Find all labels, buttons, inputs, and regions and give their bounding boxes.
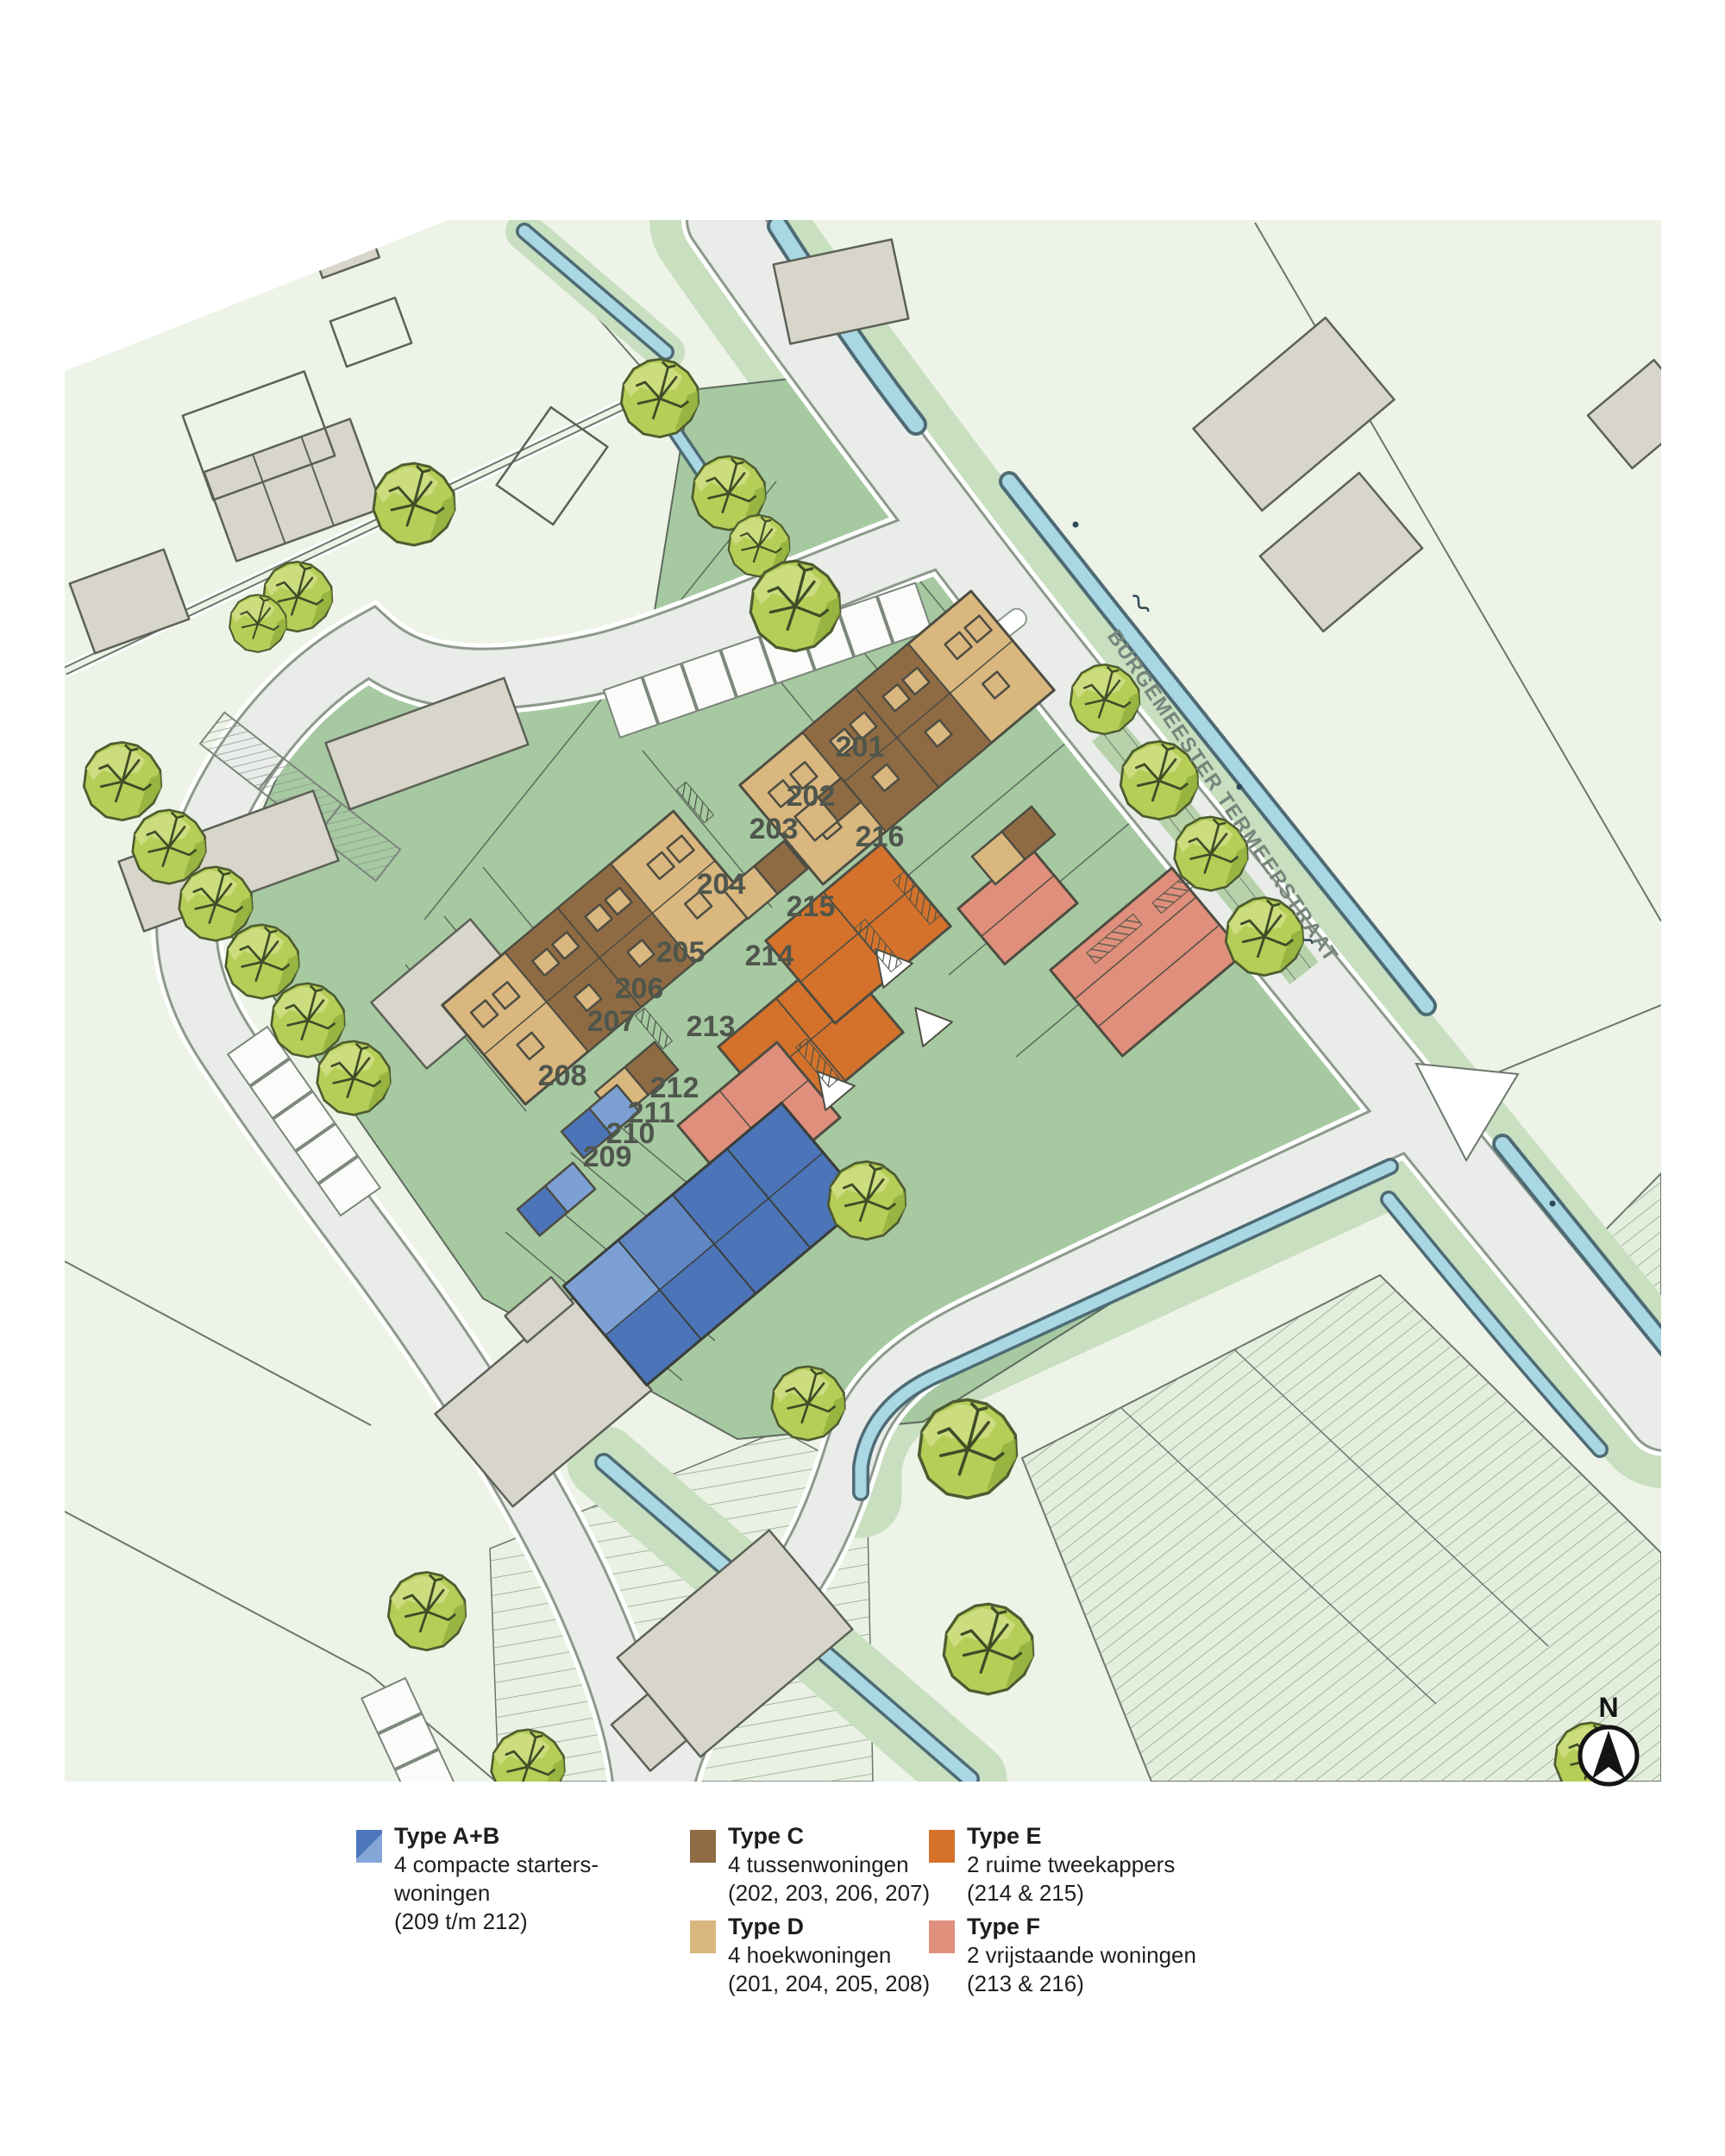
plot-label-202: 202 xyxy=(787,780,836,813)
building-footprint xyxy=(117,225,216,311)
site-plan-map: 201 202 203 204 205 206 207 208 209 210 … xyxy=(0,0,1725,2156)
plot-label-215: 215 xyxy=(787,890,836,923)
north-label: N xyxy=(1598,1692,1618,1723)
plot-label-213: 213 xyxy=(687,1010,736,1043)
plot-label-214: 214 xyxy=(745,940,794,972)
plot-label-206: 206 xyxy=(615,972,664,1005)
plot-label-212: 212 xyxy=(650,1072,699,1104)
plot-label-207: 207 xyxy=(587,1005,637,1038)
tree-icon xyxy=(492,1730,565,1804)
plot-label-203: 203 xyxy=(750,813,799,845)
plot-label-216: 216 xyxy=(856,820,905,853)
plot-label-201: 201 xyxy=(836,731,885,764)
plot-label-205: 205 xyxy=(656,936,706,969)
plot-label-208: 208 xyxy=(538,1059,587,1092)
plot-label-204: 204 xyxy=(697,868,746,901)
site-plan-page: 201 202 203 204 205 206 207 208 209 210 … xyxy=(0,0,1725,2156)
